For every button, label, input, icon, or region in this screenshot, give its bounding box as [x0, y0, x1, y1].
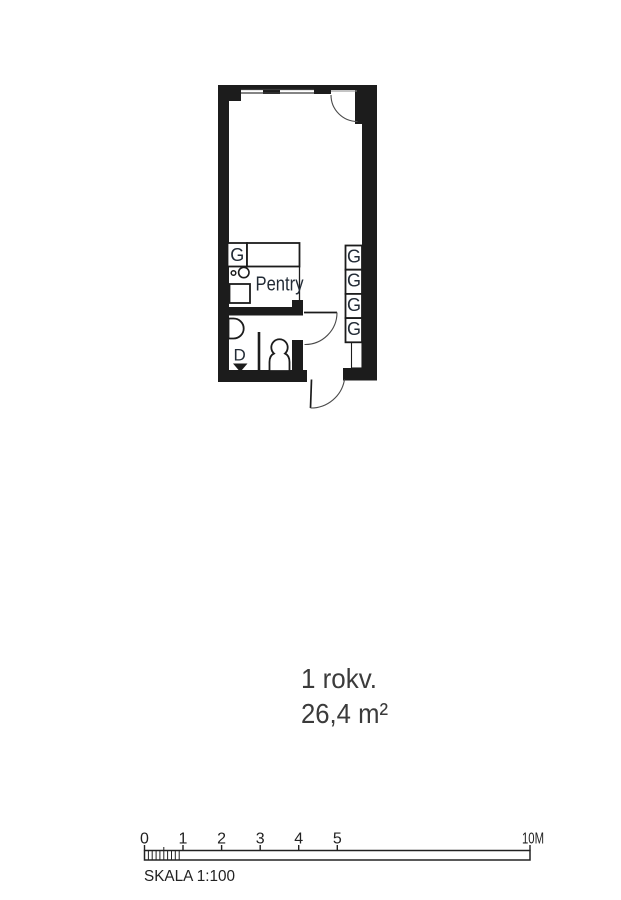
wall-left	[218, 85, 229, 382]
bathroom-door	[304, 313, 337, 345]
floor-drain-label: D	[234, 346, 246, 365]
washbasin	[229, 319, 244, 339]
pentry-label: Pentry	[256, 274, 304, 296]
window-band	[241, 90, 357, 94]
entrance-door-swing-arc	[311, 380, 345, 409]
scale-end-label: 10M	[522, 831, 544, 848]
kitchen-counter	[247, 243, 300, 267]
stove-burner-small	[231, 271, 236, 276]
bathroom-door-swing-arc	[305, 313, 338, 345]
floor-plan-drawing: G Pentry D G G G G	[0, 0, 621, 900]
unit-area: 26,4 m²	[301, 698, 388, 729]
wall-kitchen-bath-divider	[225, 307, 303, 316]
hall-wardrobe-label: G	[347, 319, 361, 339]
stove-burner-large	[239, 267, 249, 277]
bathroom: D	[229, 319, 290, 373]
scale-tick-label-2: 2	[217, 831, 226, 848]
window-mullion	[314, 87, 331, 95]
floor-plan-page: G Pentry D G G G G	[0, 0, 621, 900]
scale-tick-label-1: 1	[179, 831, 188, 848]
hall-wardrobe-label: G	[347, 271, 361, 291]
wall-bottom-right-stub	[343, 368, 377, 381]
hall-wardrobe-label: G	[347, 295, 361, 315]
balcony-door	[331, 95, 358, 122]
scale-tick-label-3: 3	[256, 831, 265, 848]
wall-right	[362, 85, 377, 380]
scale-tick-label-4: 4	[294, 831, 303, 848]
scale-bar-band	[145, 851, 531, 861]
scale-tick-label-5: 5	[333, 831, 342, 848]
kitchen-sink	[230, 284, 251, 303]
unit-info: 1 rokv. 26,4 m²	[301, 663, 388, 729]
entrance-door-leaf	[311, 380, 312, 409]
balcony-door-swing-arc	[331, 95, 358, 122]
hall-wardrobes: G G G G	[346, 246, 363, 369]
kitchen: G Pentry	[228, 243, 304, 307]
scale-tick-label-0: 0	[140, 831, 149, 848]
toilet	[270, 339, 290, 371]
entrance-door	[311, 380, 345, 409]
wall-divider-stub	[292, 300, 303, 309]
wall-bathroom-side	[292, 340, 303, 372]
wall-bottom-left	[218, 370, 307, 382]
hall-wardrobe-label: G	[347, 247, 361, 267]
scale-bar: 0 1 2 3 4 5 10M SKALA 1:100	[140, 831, 544, 886]
hall-duct	[352, 342, 363, 368]
scale-caption: SKALA 1:100	[144, 868, 235, 885]
kitchen-wardrobe-label: G	[230, 245, 244, 265]
unit-title: 1 rokv.	[301, 663, 377, 694]
